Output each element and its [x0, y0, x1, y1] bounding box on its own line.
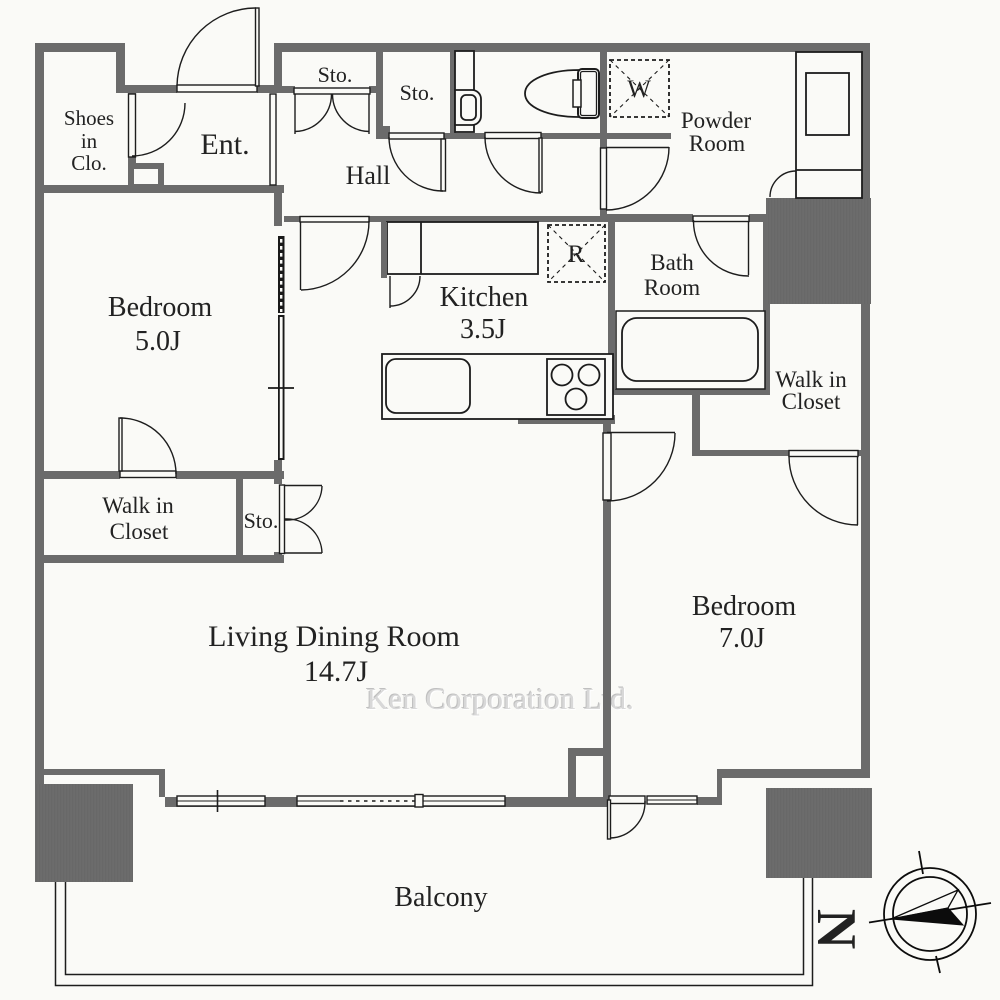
- svg-text:Sto.: Sto.: [244, 508, 279, 533]
- svg-text:14.7J: 14.7J: [304, 655, 369, 688]
- svg-text:5.0J: 5.0J: [135, 326, 181, 357]
- svg-text:Clo.: Clo.: [71, 151, 107, 175]
- svg-text:Bedroom: Bedroom: [108, 292, 212, 323]
- svg-text:Bedroom: Bedroom: [692, 591, 796, 622]
- svg-text:Living Dining Room: Living Dining Room: [208, 620, 460, 653]
- svg-text:3.5J: 3.5J: [460, 314, 506, 345]
- svg-text:Room: Room: [689, 131, 745, 156]
- svg-text:Ken Corporation Ltd.: Ken Corporation Ltd.: [366, 681, 634, 716]
- svg-text:Walk in: Walk in: [102, 493, 174, 518]
- svg-text:Powder: Powder: [681, 108, 752, 133]
- svg-text:R: R: [568, 241, 585, 268]
- svg-text:Ent.: Ent.: [200, 128, 249, 161]
- svg-text:in: in: [81, 129, 98, 153]
- svg-text:Balcony: Balcony: [394, 882, 487, 913]
- svg-text:Hall: Hall: [346, 161, 391, 190]
- svg-text:Kitchen: Kitchen: [440, 282, 529, 313]
- svg-text:Shoes: Shoes: [64, 106, 114, 130]
- svg-text:Closet: Closet: [782, 389, 841, 414]
- svg-text:Sto.: Sto.: [318, 62, 353, 87]
- svg-text:Room: Room: [644, 275, 700, 300]
- svg-text:Closet: Closet: [110, 519, 169, 544]
- svg-text:Bath: Bath: [650, 250, 694, 275]
- svg-text:W: W: [627, 76, 651, 103]
- svg-text:7.0J: 7.0J: [719, 623, 765, 654]
- svg-text:Sto.: Sto.: [400, 80, 435, 105]
- svg-text:N: N: [805, 909, 867, 949]
